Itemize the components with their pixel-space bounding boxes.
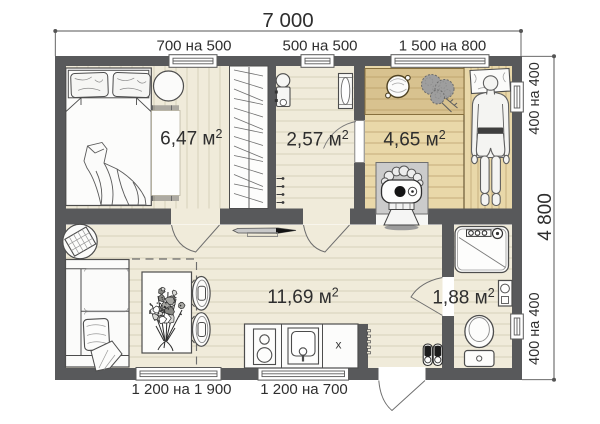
- svg-text:500 на 500: 500 на 500: [282, 38, 357, 55]
- svg-text:1 200 на 700: 1 200 на 700: [260, 381, 348, 398]
- svg-text:4,65 м2: 4,65 м2: [383, 128, 445, 151]
- svg-text:4 800: 4 800: [535, 193, 556, 241]
- svg-text:1,88 м2: 1,88 м2: [432, 286, 494, 309]
- svg-text:11,69 м2: 11,69 м2: [267, 286, 338, 309]
- svg-text:2,57 м2: 2,57 м2: [286, 128, 348, 151]
- svg-text:700 на 500: 700 на 500: [156, 38, 231, 55]
- svg-text:x: x: [336, 338, 342, 352]
- svg-text:6,47 м2: 6,47 м2: [160, 127, 222, 150]
- svg-text:400 на 400: 400 на 400: [527, 292, 543, 365]
- svg-text:1 200 на 1 900: 1 200 на 1 900: [131, 381, 231, 398]
- svg-text:7 000: 7 000: [262, 9, 313, 32]
- svg-text:400 на 400: 400 на 400: [527, 62, 543, 135]
- svg-text:1 500 на 800: 1 500 на 800: [399, 38, 487, 55]
